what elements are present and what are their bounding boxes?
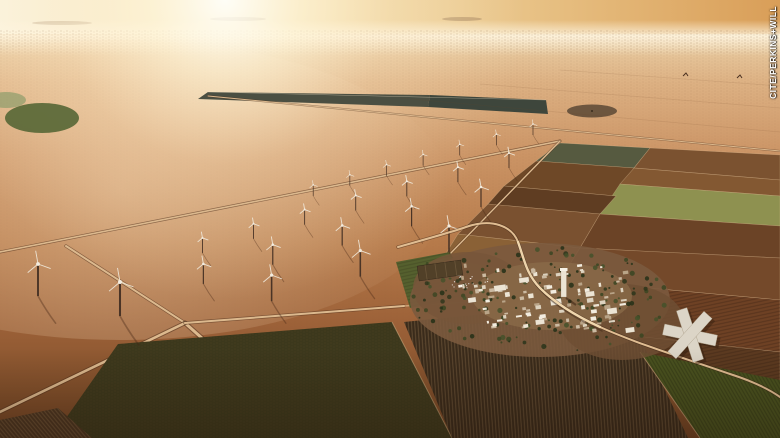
tree — [491, 281, 494, 284]
scene-canvas — [0, 0, 780, 438]
turbine-hub — [406, 180, 408, 182]
tree — [581, 274, 585, 278]
tree — [593, 265, 598, 270]
tree — [457, 326, 461, 330]
parked-car — [487, 281, 488, 282]
building — [590, 316, 596, 321]
building — [566, 318, 569, 322]
parked-car — [459, 277, 460, 278]
turbine-hub — [304, 209, 306, 211]
building — [503, 315, 507, 319]
tree — [618, 297, 620, 299]
tree — [564, 323, 569, 328]
parked-car — [461, 285, 462, 286]
building — [599, 300, 605, 305]
tree — [611, 275, 614, 278]
building — [528, 293, 534, 298]
tree — [487, 259, 490, 262]
tree — [570, 326, 573, 329]
building — [484, 310, 489, 314]
turbine-hub — [457, 166, 459, 168]
tree — [613, 299, 617, 303]
turbine-hub — [410, 205, 413, 208]
tree — [463, 337, 467, 341]
tree — [605, 299, 607, 301]
building — [587, 298, 594, 303]
tree — [523, 341, 527, 345]
tree — [630, 301, 635, 306]
turbine-hub — [508, 152, 510, 154]
tree — [440, 299, 444, 303]
tree — [624, 258, 628, 262]
building — [474, 285, 478, 288]
tree — [486, 292, 489, 295]
tree — [486, 265, 488, 267]
building — [585, 291, 595, 297]
tree — [416, 308, 420, 312]
tree — [516, 253, 521, 258]
tree — [497, 308, 502, 313]
tree — [645, 276, 649, 280]
tree — [600, 293, 603, 296]
tree — [419, 317, 421, 319]
building — [600, 266, 603, 268]
parked-car — [452, 284, 453, 285]
parked-car — [454, 281, 455, 282]
tree — [631, 263, 633, 265]
tree — [447, 295, 451, 299]
tree — [462, 306, 466, 310]
parked-car — [485, 282, 486, 283]
building — [496, 268, 499, 272]
tree — [554, 266, 556, 268]
building — [523, 291, 527, 294]
building — [475, 289, 479, 294]
tree — [597, 317, 602, 322]
tree — [602, 269, 604, 271]
tree — [658, 316, 661, 319]
building — [567, 303, 571, 307]
parked-car — [468, 283, 469, 284]
tree — [549, 251, 553, 255]
tree — [548, 319, 550, 321]
tree — [466, 271, 469, 274]
parked-car — [487, 278, 488, 279]
tree — [655, 277, 659, 281]
tree — [502, 269, 506, 273]
tree — [440, 306, 443, 309]
turbine-hub — [118, 280, 122, 284]
tree — [469, 291, 473, 295]
turbine-hub — [202, 263, 205, 266]
turbine-hub — [422, 154, 424, 156]
tree — [630, 271, 635, 276]
tree — [560, 246, 564, 250]
photo-credit-watermark: CITE/PERKINS+WILL — [768, 6, 778, 99]
tree — [440, 290, 445, 295]
tree — [556, 249, 558, 251]
tree — [569, 283, 574, 288]
tree — [654, 317, 658, 321]
tree — [507, 264, 511, 268]
parked-car — [471, 276, 472, 277]
tree — [577, 299, 580, 302]
parked-car — [466, 285, 467, 286]
tree — [525, 322, 527, 324]
tree — [596, 263, 599, 266]
tree — [445, 290, 447, 292]
tree — [559, 279, 561, 281]
tree — [611, 324, 613, 326]
tree — [515, 307, 517, 309]
tree — [516, 336, 518, 338]
building — [520, 296, 525, 300]
turbine-hub — [447, 224, 450, 227]
crop-circle-field — [5, 103, 79, 133]
parked-car — [466, 287, 467, 288]
tree — [627, 262, 629, 264]
tree — [595, 335, 599, 339]
building — [523, 324, 528, 328]
building — [492, 323, 497, 327]
turbine-hub — [359, 249, 362, 252]
parked-car — [470, 278, 471, 279]
solar-collector-circle — [567, 105, 617, 118]
tree — [478, 281, 482, 285]
turbine-hub — [355, 194, 357, 196]
tree — [433, 292, 438, 297]
building — [576, 325, 580, 329]
building — [482, 273, 486, 277]
tree — [412, 294, 416, 298]
parked-car — [453, 286, 454, 287]
bottom-vignette — [0, 348, 780, 438]
tree — [605, 336, 608, 339]
building — [542, 275, 547, 279]
building — [607, 307, 618, 314]
tree — [455, 290, 458, 293]
tree — [631, 291, 635, 295]
tree — [631, 322, 633, 324]
parked-car — [473, 283, 474, 284]
turbine-hub — [480, 186, 483, 189]
tree — [512, 295, 516, 299]
tree — [425, 281, 429, 285]
parked-car — [465, 283, 466, 284]
tree — [539, 282, 541, 284]
tree — [549, 274, 551, 276]
turbine-hub — [271, 243, 274, 246]
building — [625, 327, 635, 333]
tree — [450, 278, 452, 280]
building — [578, 293, 581, 295]
parked-car — [459, 286, 460, 287]
tree — [662, 303, 667, 308]
building — [591, 309, 597, 313]
tree — [550, 263, 553, 266]
tree — [423, 299, 426, 302]
tree — [456, 279, 460, 283]
turbine-hub — [341, 224, 344, 227]
tree — [604, 287, 607, 290]
turbine-hub — [349, 174, 351, 176]
parked-car — [460, 276, 461, 277]
turbine-hub — [36, 262, 40, 266]
tree — [635, 316, 640, 321]
tree — [496, 297, 499, 300]
building — [619, 277, 622, 280]
tree — [463, 296, 467, 300]
building — [485, 299, 490, 302]
tree — [559, 319, 563, 323]
aerial-desert-city-rendering: CITE/PERKINS+WILL — [0, 0, 780, 438]
building — [522, 307, 526, 310]
turbine-hub — [252, 223, 254, 225]
tree — [639, 333, 643, 337]
building — [535, 305, 541, 310]
building — [535, 319, 545, 325]
turbine-hub — [386, 164, 388, 166]
turbine-hub — [496, 133, 498, 135]
building — [531, 269, 536, 274]
tree — [571, 254, 574, 257]
tree — [553, 328, 557, 332]
tree — [619, 307, 621, 309]
tree — [462, 258, 467, 263]
tree — [481, 268, 485, 272]
tree — [586, 307, 589, 310]
tree — [505, 322, 508, 325]
tree — [618, 319, 620, 321]
turbine-hub — [270, 274, 273, 277]
tree — [559, 331, 562, 334]
tree — [589, 253, 593, 257]
turbine-hub — [201, 237, 203, 239]
tree — [441, 278, 446, 283]
tree — [649, 283, 652, 286]
tree — [428, 285, 431, 288]
tree — [644, 287, 648, 291]
tree — [448, 329, 451, 332]
tree — [500, 341, 502, 343]
building — [577, 288, 580, 292]
tree — [424, 308, 428, 312]
tree — [547, 325, 551, 329]
building — [468, 297, 477, 303]
building — [482, 285, 486, 289]
tree — [649, 296, 653, 300]
tree — [558, 288, 561, 291]
tree — [470, 334, 475, 339]
turbine-hub — [532, 123, 534, 125]
building — [487, 321, 489, 324]
tree — [577, 303, 579, 305]
tree — [440, 310, 443, 313]
tree — [662, 285, 667, 290]
tree — [495, 252, 498, 255]
building — [505, 292, 510, 297]
tree — [535, 247, 540, 252]
tree — [617, 325, 619, 327]
tree — [608, 287, 610, 289]
building — [578, 282, 582, 285]
tree — [610, 327, 612, 329]
tree — [553, 318, 557, 322]
tree — [647, 298, 649, 300]
turbine-hub — [312, 184, 314, 186]
tree — [633, 287, 635, 289]
tree — [497, 337, 501, 341]
turbine-hub — [459, 143, 461, 145]
tree — [508, 340, 510, 342]
building — [461, 276, 464, 280]
tree — [576, 270, 579, 273]
building — [581, 305, 585, 310]
tree — [636, 323, 640, 327]
tree — [564, 253, 568, 257]
tree — [486, 277, 488, 279]
tree — [478, 309, 481, 312]
tree — [622, 279, 627, 284]
building — [608, 316, 611, 320]
tree — [609, 343, 612, 346]
tree — [431, 319, 435, 323]
tree — [537, 327, 540, 330]
